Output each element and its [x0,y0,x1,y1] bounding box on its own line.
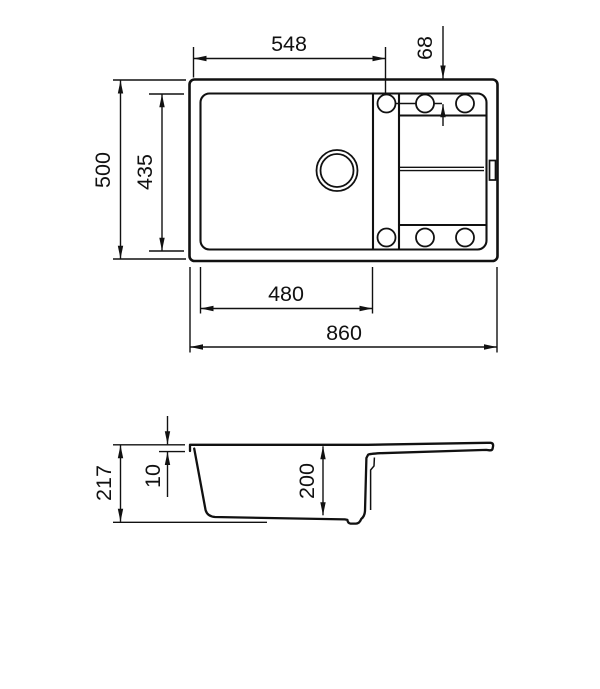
tap-hole [416,229,434,247]
dim-label-10: 10 [141,464,165,488]
dim-label-500: 500 [91,152,115,188]
arrowhead-down [118,509,123,522]
dimension-548: 548 [194,32,386,94]
tap-hole [456,95,474,113]
arrowhead-left [201,306,214,311]
overflow-notch [490,161,496,181]
top-view [190,80,498,262]
dim-label-548: 548 [271,32,307,56]
dimension-480: 480 [201,267,373,314]
tap-hole [378,229,396,247]
sink-section-profile [190,443,493,524]
arrowhead-up [165,452,170,465]
dim-label-200: 200 [295,463,319,499]
tap-hole [378,95,396,113]
arrowhead-up [159,94,164,107]
arrowhead-up [118,81,123,94]
arrowhead-left [190,344,203,349]
arrowhead-down [159,238,164,251]
arrowhead-down [320,502,325,515]
arrowhead-right [360,306,373,311]
side-view [190,443,493,524]
arrowhead-up [118,445,123,458]
arrowhead-right [484,344,497,349]
arrowhead-down [165,431,170,444]
bowl-wall-inner-line [371,458,375,511]
tap-hole [416,95,434,113]
dimension-10: 10 [141,416,185,497]
drain-inner-circle [321,154,354,187]
arrowhead-down [118,246,123,259]
arrowhead-right [373,56,386,61]
dim-label-480: 480 [268,282,304,306]
dimension-217: 217 [92,445,267,523]
dimension-200: 200 [295,446,326,515]
dimension-435: 435 [133,94,184,251]
sink-technical-drawing: 548 68 500 435 480 860 [0,0,600,689]
arrowhead-up [440,104,445,117]
arrowhead-up [320,446,325,459]
drain-outer-circle [317,150,358,191]
tap-hole [456,229,474,247]
dim-label-217: 217 [92,465,116,501]
dimension-860: 860 [190,267,497,353]
dim-label-68: 68 [413,36,437,60]
arrowhead-left [194,56,207,61]
dim-label-860: 860 [326,321,362,345]
dim-label-435: 435 [133,154,157,190]
arrowhead-down [440,66,445,79]
